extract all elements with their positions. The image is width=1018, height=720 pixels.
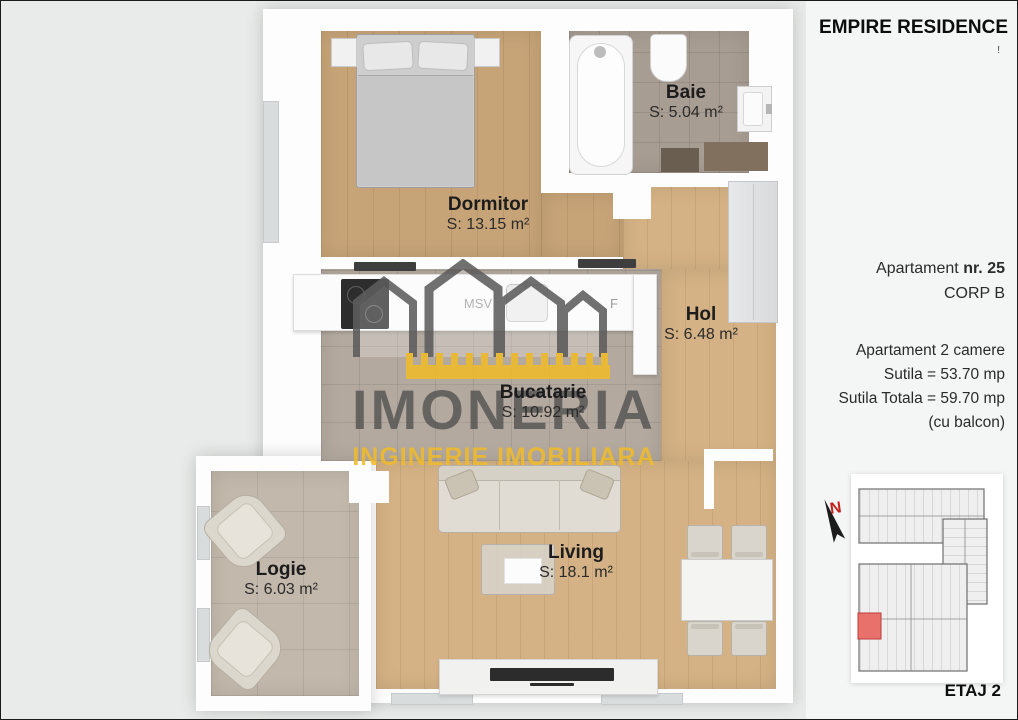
room-name: Logie bbox=[181, 559, 381, 580]
tv-console bbox=[439, 659, 658, 695]
corp-line: CORP B bbox=[876, 281, 1005, 306]
highlighted-unit bbox=[858, 613, 881, 639]
room-name: Bucatarie bbox=[443, 382, 643, 403]
room-area: S: 18.1 m² bbox=[476, 563, 676, 582]
room-area: S: 5.04 m² bbox=[606, 103, 766, 122]
dining-chair-3 bbox=[687, 621, 723, 656]
key-plan-drawing bbox=[851, 474, 1003, 683]
detail-line: Sutila = 53.70 mp bbox=[839, 363, 1005, 387]
sofa bbox=[438, 465, 621, 533]
project-title: EMPIRE RESIDENCE bbox=[813, 17, 1008, 39]
armchair-cushion-1 bbox=[214, 500, 276, 562]
wall-dormitor-hol bbox=[613, 173, 651, 219]
bathtub-faucet bbox=[594, 46, 606, 58]
dining-chair-2 bbox=[731, 525, 767, 560]
room-area: S: 6.48 m² bbox=[621, 325, 781, 344]
room-area: S: 10.92 m² bbox=[443, 403, 643, 422]
burner-2 bbox=[365, 305, 383, 323]
room-label-baie: Baie S: 5.04 m² bbox=[606, 82, 766, 122]
armchair-cushion-2 bbox=[214, 618, 276, 680]
sofa-seam-1 bbox=[499, 480, 500, 530]
room-label-dormitor: Dormitor S: 13.15 m² bbox=[388, 194, 588, 234]
apartment-number: nr. 25 bbox=[963, 260, 1005, 277]
bed bbox=[356, 34, 475, 188]
wall-logie-pillar bbox=[349, 471, 389, 503]
room-area: S: 6.03 m² bbox=[181, 580, 381, 599]
room-name: Living bbox=[476, 542, 676, 563]
detail-line: (cu balcon) bbox=[839, 411, 1005, 435]
title-mark: ! bbox=[997, 45, 1000, 56]
dishwasher-label: MSV bbox=[456, 296, 500, 311]
burner-1 bbox=[347, 286, 365, 304]
room-name: Dormitor bbox=[388, 194, 588, 215]
dining-table bbox=[681, 559, 773, 621]
dresser-item-1 bbox=[354, 262, 416, 271]
pillow-right bbox=[417, 41, 468, 72]
apartment-heading: Apartament nr. 25 CORP B bbox=[876, 256, 1005, 306]
pillow-left bbox=[362, 41, 413, 72]
room-area: S: 13.15 m² bbox=[388, 215, 588, 234]
floor-label: ETAJ 2 bbox=[945, 681, 1001, 701]
dining-chair-4 bbox=[731, 621, 767, 656]
entry-closet-2 bbox=[704, 142, 768, 171]
sofa-seam-2 bbox=[559, 480, 560, 530]
nightstand-right bbox=[474, 38, 500, 67]
wall-living-stub-h bbox=[704, 449, 773, 461]
entry-closet-1 bbox=[661, 148, 699, 172]
room-label-logie: Logie S: 6.03 m² bbox=[181, 559, 381, 599]
window-dormitor-west bbox=[263, 101, 279, 243]
dresser-item-2 bbox=[578, 259, 636, 268]
room-name: Baie bbox=[606, 82, 766, 103]
detail-line: Sutila Totala = 59.70 mp bbox=[839, 387, 1005, 411]
detail-line: Apartament 2 camere bbox=[839, 339, 1005, 363]
tv-stand bbox=[530, 683, 574, 686]
kitchen-sink bbox=[506, 284, 548, 322]
nightstand-left bbox=[331, 38, 357, 67]
bathroom-sink-faucet bbox=[766, 104, 772, 114]
apartment-number-line: Apartament nr. 25 bbox=[876, 256, 1005, 281]
blanket bbox=[358, 75, 473, 186]
room-label-living: Living S: 18.1 m² bbox=[476, 542, 676, 582]
room-name: Hol bbox=[621, 304, 781, 325]
north-label: N bbox=[829, 499, 843, 518]
dining-chair-1 bbox=[687, 525, 723, 560]
building-key-plan bbox=[851, 474, 1003, 683]
wall-living-stub-v bbox=[704, 449, 714, 509]
tv bbox=[490, 668, 614, 681]
cooktop bbox=[341, 279, 389, 329]
kitchen-faucet bbox=[523, 281, 531, 289]
toilet bbox=[650, 34, 687, 82]
room-label-bucatarie: Bucatarie S: 10.92 m² bbox=[443, 382, 643, 422]
hallway-wardrobe bbox=[728, 181, 778, 323]
floorplan-page: MSV F IMONERIA INGINERIE IMOBILI bbox=[0, 0, 1018, 720]
apartment-details: Apartament 2 camere Sutila = 53.70 mp Su… bbox=[839, 339, 1005, 435]
room-label-hol: Hol S: 6.48 m² bbox=[621, 304, 781, 344]
